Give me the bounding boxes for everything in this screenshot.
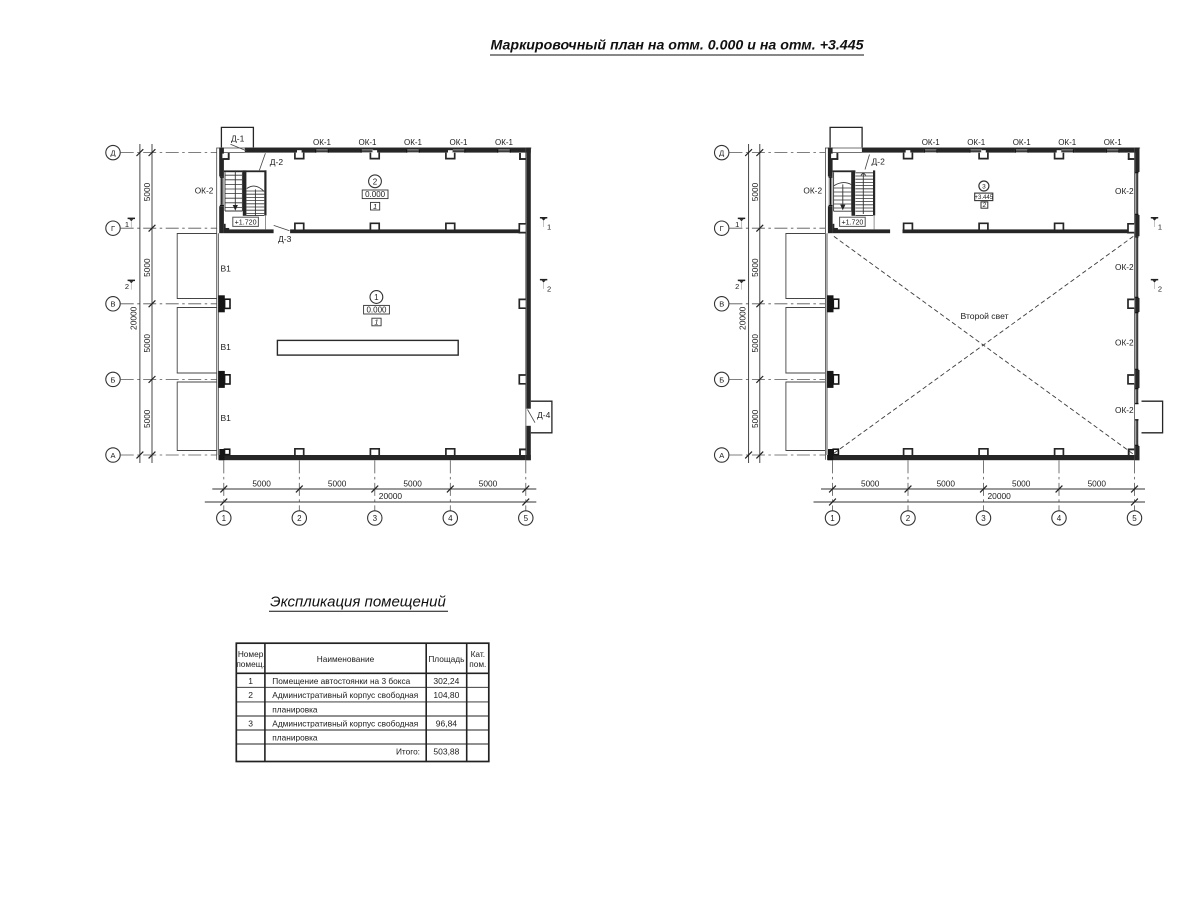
svg-text:5000: 5000 [750, 182, 760, 201]
svg-text:Административный корпус свобод: Административный корпус свободная [272, 690, 418, 700]
svg-text:планировка: планировка [272, 733, 318, 743]
svg-text:ОК-2: ОК-2 [803, 185, 822, 195]
svg-text:2: 2 [297, 514, 302, 523]
svg-text:2: 2 [1158, 285, 1162, 294]
svg-text:503,88: 503,88 [433, 747, 459, 757]
svg-text:5000: 5000 [1012, 478, 1031, 488]
svg-text:ОК-1: ОК-1 [1104, 138, 1123, 147]
svg-text:1: 1 [373, 202, 377, 211]
svg-text:0.000: 0.000 [366, 305, 387, 314]
svg-text:20000: 20000 [379, 491, 403, 501]
svg-text:2: 2 [982, 202, 987, 209]
svg-text:1: 1 [374, 293, 379, 302]
svg-text:Номер: Номер [238, 649, 264, 659]
svg-text:ОК-2: ОК-2 [195, 185, 214, 195]
svg-text:Г: Г [111, 224, 115, 233]
svg-text:2: 2 [373, 177, 378, 186]
svg-text:пом.: пом. [469, 659, 486, 669]
svg-text:Помещение автостоянки на 3 бок: Помещение автостоянки на 3 бокса [272, 676, 410, 686]
svg-text:В: В [110, 300, 115, 309]
svg-text:Экспликация помещений: Экспликация помещений [270, 594, 446, 611]
svg-text:3: 3 [981, 514, 986, 523]
svg-text:5000: 5000 [861, 478, 880, 488]
svg-text:Г: Г [720, 224, 724, 233]
svg-text:302,24: 302,24 [433, 676, 459, 686]
svg-text:1: 1 [735, 220, 739, 229]
svg-text:96,84: 96,84 [436, 718, 458, 728]
svg-text:Д-2: Д-2 [270, 157, 284, 167]
svg-text:помещ.: помещ. [236, 659, 265, 669]
svg-text:5000: 5000 [252, 478, 271, 488]
svg-text:Второй свет: Второй свет [961, 311, 1009, 321]
svg-text:5000: 5000 [142, 182, 152, 201]
svg-text:ОК-1: ОК-1 [1058, 138, 1077, 147]
svg-text:ОК-1: ОК-1 [495, 138, 514, 147]
svg-text:Итого:: Итого: [396, 747, 420, 757]
svg-text:ОК-1: ОК-1 [967, 138, 986, 147]
svg-text:ОК-1: ОК-1 [1013, 138, 1032, 147]
svg-text:Маркировочный план на отм. 0.0: Маркировочный план на отм. 0.000 и на от… [491, 38, 865, 54]
svg-text:4: 4 [448, 514, 453, 523]
svg-text:20000: 20000 [988, 491, 1012, 501]
svg-text:Наименование: Наименование [317, 654, 375, 664]
svg-text:Д: Д [110, 149, 115, 158]
svg-text:Д-4: Д-4 [537, 410, 551, 420]
svg-text:1: 1 [830, 514, 835, 523]
svg-text:1: 1 [1158, 223, 1162, 232]
svg-text:ОК-2: ОК-2 [1115, 262, 1134, 272]
svg-text:4: 4 [1057, 514, 1062, 523]
svg-text:2: 2 [547, 285, 551, 294]
svg-text:ОК-1: ОК-1 [404, 138, 423, 147]
svg-text:1: 1 [125, 220, 129, 229]
svg-text:Площадь: Площадь [428, 654, 464, 664]
svg-text:Кат.: Кат. [471, 649, 485, 659]
svg-text:5000: 5000 [937, 478, 956, 488]
svg-text:3: 3 [373, 514, 378, 523]
svg-text:1: 1 [374, 318, 378, 327]
svg-text:5: 5 [1132, 514, 1137, 523]
svg-text:ОК-1: ОК-1 [359, 138, 378, 147]
svg-text:ОК-2: ОК-2 [1115, 186, 1134, 196]
svg-text:2: 2 [906, 514, 911, 523]
svg-text:1: 1 [547, 223, 551, 232]
svg-text:5000: 5000 [750, 258, 760, 277]
svg-text:0.000: 0.000 [365, 190, 386, 199]
svg-text:5000: 5000 [403, 478, 422, 488]
svg-text:Б: Б [719, 375, 724, 384]
svg-text:20000: 20000 [129, 306, 139, 330]
svg-text:В1: В1 [221, 413, 232, 423]
svg-text:Д-2: Д-2 [872, 157, 886, 167]
svg-text:2: 2 [735, 282, 739, 291]
svg-text:2: 2 [125, 282, 129, 291]
svg-text:В1: В1 [221, 264, 232, 274]
svg-text:+1.720: +1.720 [841, 218, 863, 226]
svg-text:ОК-1: ОК-1 [922, 138, 941, 147]
svg-text:2: 2 [248, 690, 253, 700]
svg-text:ОК-1: ОК-1 [450, 138, 469, 147]
svg-text:104,80: 104,80 [433, 690, 459, 700]
svg-text:А: А [110, 451, 115, 460]
svg-text:планировка: планировка [272, 704, 318, 714]
svg-text:В1: В1 [221, 342, 232, 352]
svg-text:ОК-1: ОК-1 [313, 138, 332, 147]
svg-text:1: 1 [222, 514, 227, 523]
svg-text:5: 5 [524, 514, 529, 523]
svg-text:1: 1 [248, 676, 253, 686]
svg-text:А: А [719, 451, 724, 460]
svg-text:Административный корпус свобод: Административный корпус свободная [272, 718, 418, 728]
svg-text:Б: Б [111, 375, 116, 384]
svg-text:+3.445: +3.445 [974, 194, 993, 201]
svg-text:3: 3 [248, 718, 253, 728]
svg-text:5000: 5000 [142, 409, 152, 428]
svg-text:3: 3 [982, 183, 986, 190]
svg-text:5000: 5000 [142, 258, 152, 277]
svg-text:+1.720: +1.720 [235, 218, 257, 226]
svg-text:20000: 20000 [737, 306, 747, 330]
svg-text:5000: 5000 [750, 409, 760, 428]
svg-text:Д: Д [719, 149, 724, 158]
svg-text:5000: 5000 [1088, 478, 1107, 488]
svg-text:Д-1: Д-1 [231, 134, 245, 144]
svg-text:Д-3: Д-3 [278, 234, 292, 244]
svg-text:5000: 5000 [142, 334, 152, 353]
svg-text:5000: 5000 [479, 478, 498, 488]
svg-text:В: В [719, 300, 724, 309]
svg-text:5000: 5000 [750, 334, 760, 353]
svg-text:ОК-2: ОК-2 [1115, 405, 1134, 415]
svg-text:ОК-2: ОК-2 [1115, 337, 1134, 347]
svg-text:5000: 5000 [328, 478, 347, 488]
